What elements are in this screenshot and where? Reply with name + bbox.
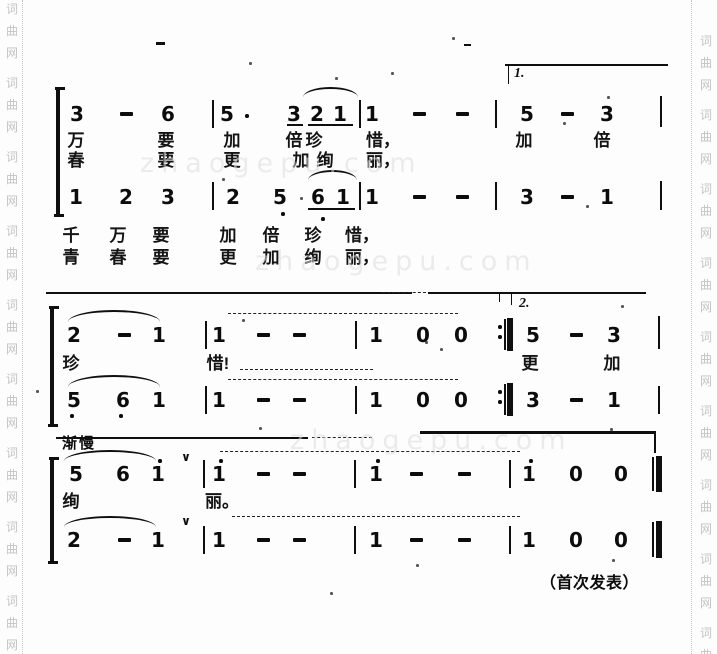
site-watermark-char: 网 bbox=[698, 596, 714, 610]
note: 1 bbox=[152, 389, 166, 411]
note: 5 bbox=[69, 463, 83, 485]
site-watermark-char: 曲 bbox=[698, 426, 714, 440]
scan-speck bbox=[416, 564, 419, 567]
note: 5 bbox=[273, 186, 287, 208]
barline bbox=[658, 316, 660, 349]
barline bbox=[205, 386, 207, 414]
site-watermark-char: 词 bbox=[698, 108, 714, 122]
barline bbox=[212, 182, 214, 210]
note: 2 bbox=[67, 529, 81, 551]
site-watermark-char: 词 bbox=[698, 404, 714, 418]
site-watermark-char: 曲 bbox=[698, 278, 714, 292]
scan-speck bbox=[612, 559, 615, 562]
site-watermark-char: 网 bbox=[698, 448, 714, 462]
duration-dash bbox=[118, 333, 131, 337]
site-watermark-char: 网 bbox=[4, 120, 20, 134]
site-watermark-char: 曲 bbox=[4, 542, 20, 556]
repeat-dot bbox=[498, 335, 502, 339]
barline bbox=[205, 321, 207, 349]
scan-speck bbox=[242, 319, 245, 322]
site-watermark-char: 网 bbox=[4, 490, 20, 504]
barline bbox=[660, 96, 662, 127]
lyric-extension bbox=[240, 369, 373, 370]
repeat-barline bbox=[507, 318, 513, 351]
barline bbox=[355, 321, 357, 349]
note: 1 bbox=[212, 529, 226, 551]
barline bbox=[495, 100, 497, 128]
scan-speck bbox=[440, 348, 443, 351]
scan-speck bbox=[391, 72, 394, 75]
volta-bracket bbox=[505, 64, 668, 66]
duration-dash bbox=[413, 195, 426, 199]
site-watermark-char: 曲 bbox=[4, 98, 20, 112]
barline bbox=[203, 460, 205, 488]
site-watermark-char: 曲 bbox=[698, 574, 714, 588]
repeat-barline bbox=[507, 383, 513, 416]
lyric-syllable: 更 bbox=[220, 248, 237, 268]
beam-underline bbox=[308, 208, 355, 210]
lyric-syllable: 千 bbox=[63, 226, 80, 246]
lyric-syllable: 加 bbox=[516, 131, 533, 151]
duration-dash bbox=[570, 398, 583, 402]
scan-speck bbox=[330, 592, 333, 595]
site-watermark-char: 网 bbox=[698, 374, 714, 388]
breath-mark: ∨ bbox=[181, 450, 191, 464]
barline bbox=[354, 460, 356, 488]
lyric-syllable: 青 bbox=[63, 248, 80, 268]
note: 3 bbox=[600, 103, 614, 125]
duration-dash bbox=[456, 195, 469, 199]
site-watermark-char: 网 bbox=[4, 638, 20, 652]
diagonal-watermark: zhaogepu.com bbox=[140, 148, 423, 179]
note: 3 bbox=[70, 103, 84, 125]
slur bbox=[303, 87, 358, 100]
duration-dash bbox=[410, 472, 423, 476]
note: 5 bbox=[220, 103, 234, 125]
note: 0 bbox=[416, 389, 430, 411]
note: 1 bbox=[522, 463, 536, 485]
duration-dash bbox=[458, 472, 471, 476]
lyric-syllable: 珍 bbox=[305, 226, 322, 246]
note: 1 bbox=[369, 529, 383, 551]
brace-hook bbox=[54, 214, 64, 217]
final-barline bbox=[656, 456, 662, 492]
note: 2 bbox=[310, 103, 324, 125]
note: 1 bbox=[369, 324, 383, 346]
barline bbox=[203, 526, 205, 554]
lyric-syllable: 万 bbox=[110, 226, 127, 246]
lyric-syllable: 春 bbox=[68, 151, 85, 171]
octave-dot-low bbox=[70, 414, 74, 418]
note: 3 bbox=[520, 186, 534, 208]
site-watermark-char: 曲 bbox=[4, 24, 20, 38]
site-watermark-char: 词 bbox=[4, 446, 20, 460]
duration-dash bbox=[293, 333, 306, 337]
note: 1 bbox=[600, 186, 614, 208]
note: 0 bbox=[454, 389, 468, 411]
site-watermark-char: 词 bbox=[4, 372, 20, 386]
note: 2 bbox=[226, 186, 240, 208]
note: 2 bbox=[67, 324, 81, 346]
separator-line bbox=[428, 292, 646, 294]
site-watermark-char: 网 bbox=[4, 564, 20, 578]
scan-speck bbox=[607, 96, 610, 99]
site-watermark-char: 网 bbox=[4, 194, 20, 208]
note: 3 bbox=[607, 324, 621, 346]
site-watermark-char: 词 bbox=[4, 76, 20, 90]
site-watermark-char: 曲 bbox=[698, 56, 714, 70]
site-watermark-char: 词 bbox=[698, 182, 714, 196]
site-watermark-char: 词 bbox=[698, 256, 714, 270]
duration-dash bbox=[257, 398, 270, 402]
breath-mark: ∨ bbox=[181, 514, 191, 528]
slur bbox=[68, 375, 160, 390]
note: 0 bbox=[614, 529, 628, 551]
site-watermark-char: 网 bbox=[4, 416, 20, 430]
note: 0 bbox=[614, 463, 628, 485]
barline bbox=[212, 100, 214, 128]
barline bbox=[509, 460, 511, 488]
slur bbox=[68, 310, 160, 325]
note: 3 bbox=[287, 103, 301, 125]
repeat-dot bbox=[498, 325, 502, 329]
octave-dot-high bbox=[529, 459, 533, 463]
site-watermark-char: 网 bbox=[698, 522, 714, 536]
note: 2 bbox=[119, 186, 133, 208]
barline bbox=[355, 386, 357, 414]
site-watermark-char: 词 bbox=[4, 594, 20, 608]
site-watermark-char: 网 bbox=[698, 300, 714, 314]
duration-dash bbox=[570, 333, 583, 337]
scan-speck bbox=[36, 390, 39, 393]
site-watermark-char: 词 bbox=[4, 2, 20, 16]
note: 6 bbox=[161, 103, 175, 125]
duration-dash bbox=[257, 333, 270, 337]
note: 1 bbox=[212, 324, 226, 346]
duration-dash bbox=[293, 398, 306, 402]
volta-bracket bbox=[508, 66, 509, 84]
duration-dash bbox=[293, 472, 306, 476]
note: 6 bbox=[311, 186, 325, 208]
scan-speck bbox=[259, 427, 262, 430]
volta-bracket bbox=[499, 294, 500, 302]
separator-hook bbox=[654, 431, 656, 453]
site-watermark-char: 曲 bbox=[698, 352, 714, 366]
site-watermark-char: 曲 bbox=[698, 648, 714, 654]
score-canvas: 365321153万要加倍珍惜，加倍春要更加绚丽，1232561131千万要加倍… bbox=[0, 0, 717, 654]
note: 1 bbox=[336, 186, 350, 208]
site-watermark-char: 曲 bbox=[4, 172, 20, 186]
augmentation-dot bbox=[245, 114, 249, 118]
site-watermark-char: 曲 bbox=[4, 246, 20, 260]
site-watermark-char: 曲 bbox=[4, 394, 20, 408]
note: 3 bbox=[526, 389, 540, 411]
barline bbox=[658, 386, 660, 414]
site-watermark-char: 词 bbox=[4, 520, 20, 534]
note: 1 bbox=[369, 389, 383, 411]
site-watermark-char: 词 bbox=[698, 626, 714, 640]
slur bbox=[64, 516, 156, 530]
site-watermark-char: 词 bbox=[698, 34, 714, 48]
voice-brace bbox=[50, 308, 54, 426]
lyric-syllable: 惜， bbox=[345, 226, 379, 246]
brace-hook bbox=[55, 87, 65, 90]
note: 1 bbox=[152, 324, 166, 346]
lyric-syllable: 加 bbox=[604, 354, 621, 374]
note: 0 bbox=[569, 463, 583, 485]
scan-speck bbox=[586, 205, 589, 208]
scan-speck bbox=[563, 122, 566, 125]
lyric-syllable: 要 bbox=[153, 248, 170, 268]
lyric-syllable: 绚 bbox=[63, 492, 80, 512]
duration-dash bbox=[118, 538, 131, 542]
first-publication-note: （首次发表） bbox=[540, 569, 639, 593]
site-watermark-char: 曲 bbox=[698, 500, 714, 514]
note: 1 bbox=[365, 103, 379, 125]
repeat-barline bbox=[504, 384, 506, 415]
barline bbox=[359, 182, 361, 210]
lyric-syllable: 加 bbox=[220, 226, 237, 246]
stray-mark bbox=[464, 44, 471, 46]
note: 1 bbox=[369, 463, 383, 485]
lyric-syllable: 春 bbox=[110, 248, 127, 268]
scan-speck bbox=[452, 37, 455, 40]
barline bbox=[495, 182, 497, 210]
site-watermark-char: 网 bbox=[698, 226, 714, 240]
volta-bracket bbox=[511, 294, 512, 305]
note: 5 bbox=[520, 103, 534, 125]
tie bbox=[232, 516, 520, 517]
duration-dash bbox=[410, 538, 423, 542]
diagonal-watermark: zhaogepu.com bbox=[290, 425, 573, 456]
octave-dot-high bbox=[158, 459, 162, 463]
diagonal-watermark: zhaogepu.com bbox=[255, 246, 538, 277]
note: 0 bbox=[454, 324, 468, 346]
duration-dash bbox=[120, 112, 133, 116]
duration-dash bbox=[257, 538, 270, 542]
duration-dash bbox=[456, 112, 469, 116]
scan-speck bbox=[425, 341, 428, 344]
volta-2-label: 2. bbox=[519, 296, 530, 312]
site-watermark-char: 词 bbox=[4, 224, 20, 238]
brace-hook bbox=[48, 424, 58, 427]
stray-mark bbox=[156, 42, 165, 45]
brace-hook bbox=[49, 306, 59, 309]
separator-line bbox=[382, 292, 426, 293]
scan-speck bbox=[621, 305, 624, 308]
tie bbox=[228, 379, 458, 380]
note: 0 bbox=[416, 324, 430, 346]
note: 1 bbox=[333, 103, 347, 125]
site-watermark-char: 词 bbox=[698, 552, 714, 566]
site-watermark-char: 网 bbox=[4, 46, 20, 60]
right-edge-dotted-line bbox=[691, 0, 692, 654]
lyric-syllable: 倍 bbox=[594, 131, 611, 151]
repeat-barline bbox=[504, 319, 506, 350]
duration-dash bbox=[561, 112, 574, 116]
barline bbox=[359, 100, 361, 128]
note: 6 bbox=[116, 389, 130, 411]
lyric-syllable: 丽。 bbox=[205, 492, 239, 512]
note: 1 bbox=[212, 463, 226, 485]
lyric-syllable: 珍 bbox=[63, 354, 80, 374]
note: 6 bbox=[116, 463, 130, 485]
barline bbox=[509, 526, 511, 554]
site-watermark-char: 词 bbox=[4, 298, 20, 312]
site-watermark-char: 网 bbox=[698, 152, 714, 166]
site-watermark-char: 曲 bbox=[4, 616, 20, 630]
note: 5 bbox=[67, 389, 81, 411]
duration-dash bbox=[257, 472, 270, 476]
site-watermark-char: 曲 bbox=[698, 130, 714, 144]
scan-speck bbox=[249, 62, 252, 65]
volta-1-label: 1. bbox=[514, 66, 525, 82]
site-watermark-char: 网 bbox=[4, 342, 20, 356]
note: 1 bbox=[522, 529, 536, 551]
site-watermark-char: 词 bbox=[698, 478, 714, 492]
octave-dot-low bbox=[321, 217, 325, 221]
scan-speck bbox=[158, 230, 161, 233]
repeat-dot bbox=[498, 400, 502, 404]
site-watermark-char: 词 bbox=[4, 150, 20, 164]
site-watermark-char: 网 bbox=[698, 78, 714, 92]
note: 0 bbox=[569, 529, 583, 551]
note: 1 bbox=[365, 186, 379, 208]
note: 1 bbox=[151, 529, 165, 551]
beam-underline bbox=[287, 124, 303, 126]
barline bbox=[660, 181, 662, 210]
final-barline bbox=[652, 522, 654, 557]
note: 1 bbox=[607, 389, 621, 411]
separator-line bbox=[46, 292, 412, 294]
voice-brace bbox=[56, 89, 60, 216]
lyric-syllable: 惜! bbox=[207, 354, 230, 374]
note: 5 bbox=[526, 324, 540, 346]
scan-speck bbox=[300, 197, 303, 200]
duration-dash bbox=[293, 538, 306, 542]
octave-dot-low bbox=[281, 212, 285, 216]
brace-hook bbox=[49, 457, 59, 460]
note: 1 bbox=[212, 389, 226, 411]
site-watermark-char: 曲 bbox=[4, 320, 20, 334]
scan-speck bbox=[335, 77, 338, 80]
octave-dot-low bbox=[119, 414, 123, 418]
note: 1 bbox=[69, 186, 83, 208]
lyric-syllable: 万 bbox=[68, 131, 85, 151]
tie bbox=[228, 313, 458, 314]
octave-dot-high bbox=[219, 459, 223, 463]
sheet-music-page: 365321153万要加倍珍惜，加倍春要更加绚丽，1232561131千万要加倍… bbox=[0, 0, 717, 654]
site-watermark-char: 网 bbox=[4, 268, 20, 282]
lyric-syllable: 要 bbox=[153, 226, 170, 246]
site-watermark-char: 词 bbox=[698, 330, 714, 344]
site-watermark-char: 曲 bbox=[698, 204, 714, 218]
repeat-dot bbox=[498, 390, 502, 394]
site-watermark-char: 曲 bbox=[4, 468, 20, 482]
brace-hook bbox=[48, 561, 58, 564]
note: 1 bbox=[151, 463, 165, 485]
final-barline bbox=[656, 521, 662, 558]
lyric-syllable: 更 bbox=[522, 354, 539, 374]
voice-brace bbox=[50, 459, 54, 563]
tempo-marking: 渐慢 bbox=[62, 432, 96, 453]
duration-dash bbox=[561, 195, 574, 199]
lyric-syllable: 倍 bbox=[263, 226, 280, 246]
scan-speck bbox=[610, 428, 613, 431]
note: 3 bbox=[161, 186, 175, 208]
octave-dot-high bbox=[376, 459, 380, 463]
duration-dash bbox=[458, 538, 471, 542]
barline bbox=[354, 526, 356, 554]
left-edge-dotted-line bbox=[22, 0, 23, 654]
duration-dash bbox=[413, 112, 426, 116]
final-barline bbox=[652, 457, 654, 491]
beam-underline bbox=[308, 124, 353, 126]
